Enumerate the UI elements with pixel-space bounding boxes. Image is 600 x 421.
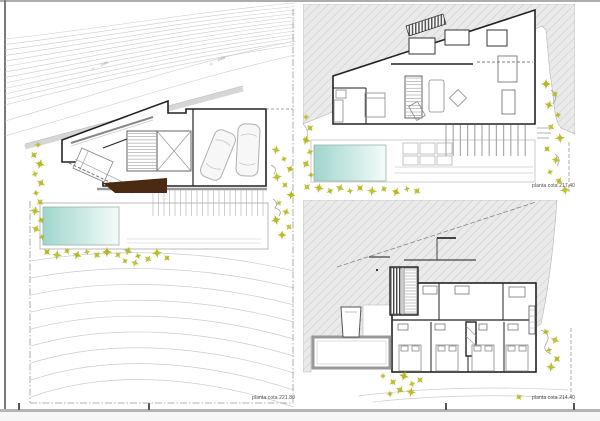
connector-room	[341, 307, 361, 337]
plan-caption: planta cota 221.80	[207, 396, 295, 401]
striped-stone-wall	[391, 268, 402, 314]
contour-label: pobl.	[100, 59, 110, 67]
upper-floor-plan-drawing	[303, 4, 575, 196]
topographic-contours-lower	[31, 253, 294, 407]
retaining-wall-hatch	[153, 190, 263, 216]
plan-caption: planta cota 217.40	[487, 184, 575, 189]
page-background-below-sheet	[0, 412, 600, 421]
exterior-steps	[537, 128, 551, 138]
car	[236, 123, 261, 176]
staircase	[127, 131, 157, 171]
sheet-top-edge	[0, 0, 600, 2]
bedroom-floor-plan-drawing	[303, 200, 575, 406]
rock-outlines	[271, 165, 280, 216]
drawing-sheet: pobl. pobl.	[0, 0, 600, 421]
contour-label: pobl.	[217, 55, 227, 62]
plan-caption: planta cota 214.40	[487, 396, 575, 401]
staircase	[405, 76, 422, 118]
lower-terrace	[313, 337, 390, 368]
site-plan-drawing: pobl. pobl.	[5, 3, 295, 407]
swimming-pool	[43, 207, 119, 245]
swimming-pool	[314, 145, 386, 181]
